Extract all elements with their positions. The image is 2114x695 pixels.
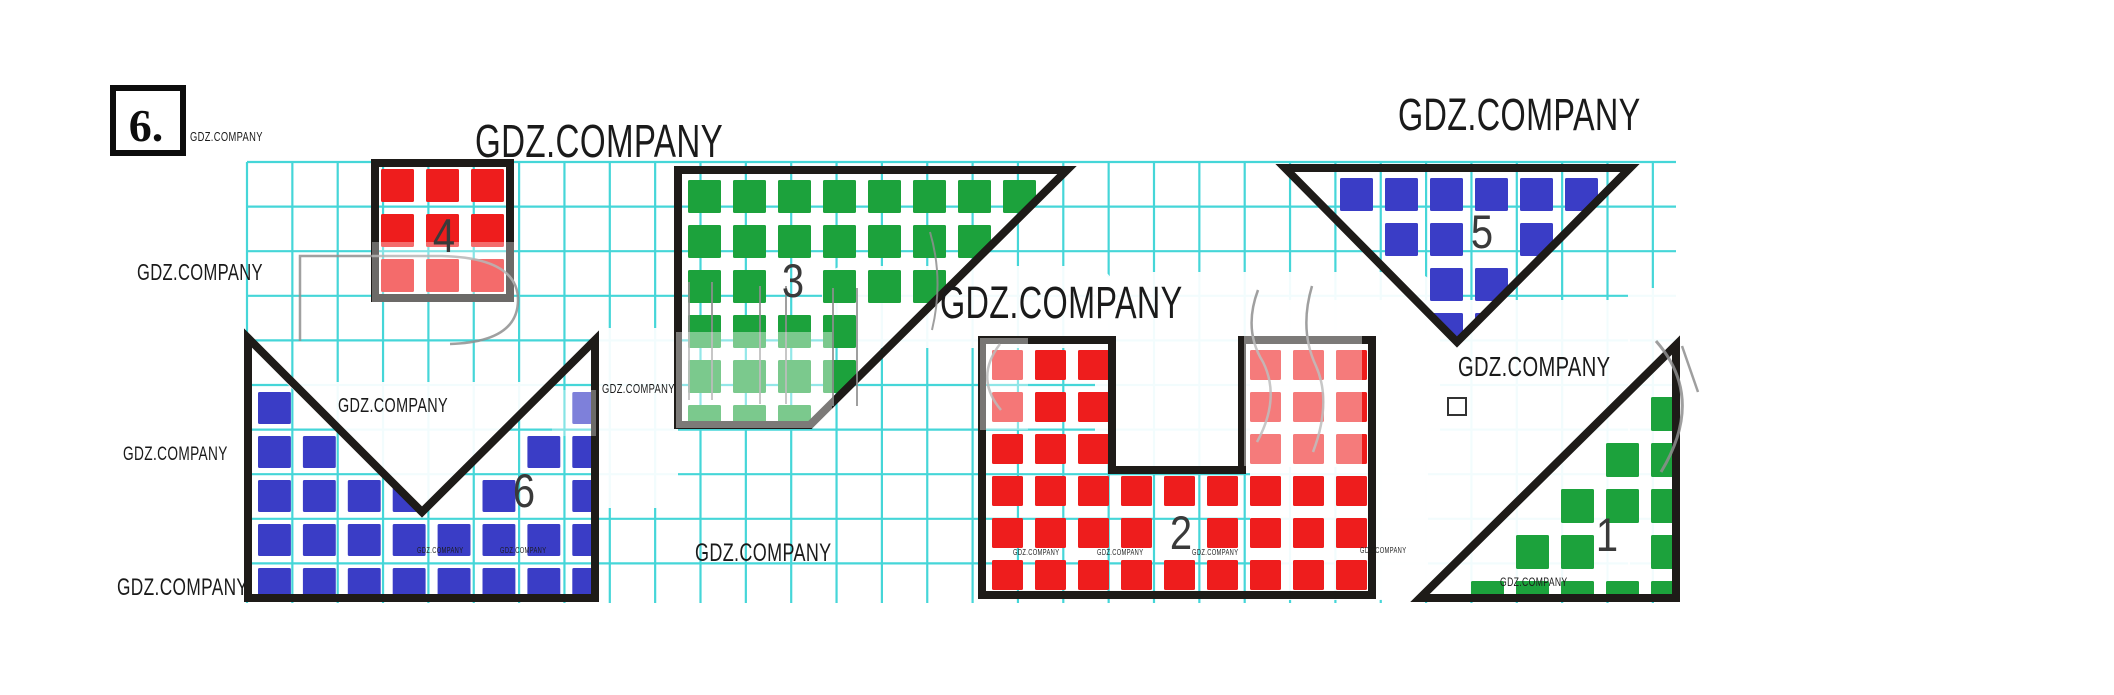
watermark-text: GDZ.COMPANY <box>137 260 263 285</box>
watermark-text: GDZ.COMPANY <box>1458 352 1610 383</box>
watermark-text: GDZ.COMPANY <box>190 131 263 145</box>
watermark-text: GDZ.COMPANY <box>417 547 463 555</box>
figure-1-number: 1 <box>1596 510 1618 562</box>
watermark-text: GDZ.COMPANY <box>475 117 723 167</box>
figure-5-number: 5 <box>1471 207 1493 259</box>
figure-6-number: 6 <box>513 466 535 518</box>
worksheet-image: 6.123456GDZ.COMPANYGDZ.COMPANYGDZ.COMPAN… <box>0 0 2114 695</box>
watermark-text: GDZ.COMPANY <box>500 547 546 555</box>
watermark-text: GDZ.COMPANY <box>1013 549 1059 557</box>
worksheet-page: 6.123456GDZ.COMPANYGDZ.COMPANYGDZ.COMPAN… <box>0 0 2114 695</box>
watermark-text: GDZ.COMPANY <box>123 443 228 465</box>
watermark-text: GDZ.COMPANY <box>1360 547 1406 555</box>
watermark-text: GDZ.COMPANY <box>695 538 832 567</box>
small-square-icon <box>1448 398 1466 415</box>
exercise-number-box: 6. <box>113 88 183 153</box>
watermark-text: GDZ.COMPANY <box>940 279 1183 328</box>
watermark-text: GDZ.COMPANY <box>1192 549 1238 557</box>
figure-2-number: 2 <box>1170 508 1192 560</box>
watermark-text: GDZ.COMPANY <box>602 383 675 397</box>
figure-3-number: 3 <box>782 256 804 308</box>
watermark-text: GDZ.COMPANY <box>1500 577 1568 590</box>
watermark-text: GDZ.COMPANY <box>1398 91 1641 140</box>
watermark-text: GDZ.COMPANY <box>117 574 248 600</box>
exercise-number: 6. <box>129 100 164 151</box>
watermark-text: GDZ.COMPANY <box>1097 549 1143 557</box>
watermark-text: GDZ.COMPANY <box>338 394 448 417</box>
figure-4-number: 4 <box>433 211 455 263</box>
